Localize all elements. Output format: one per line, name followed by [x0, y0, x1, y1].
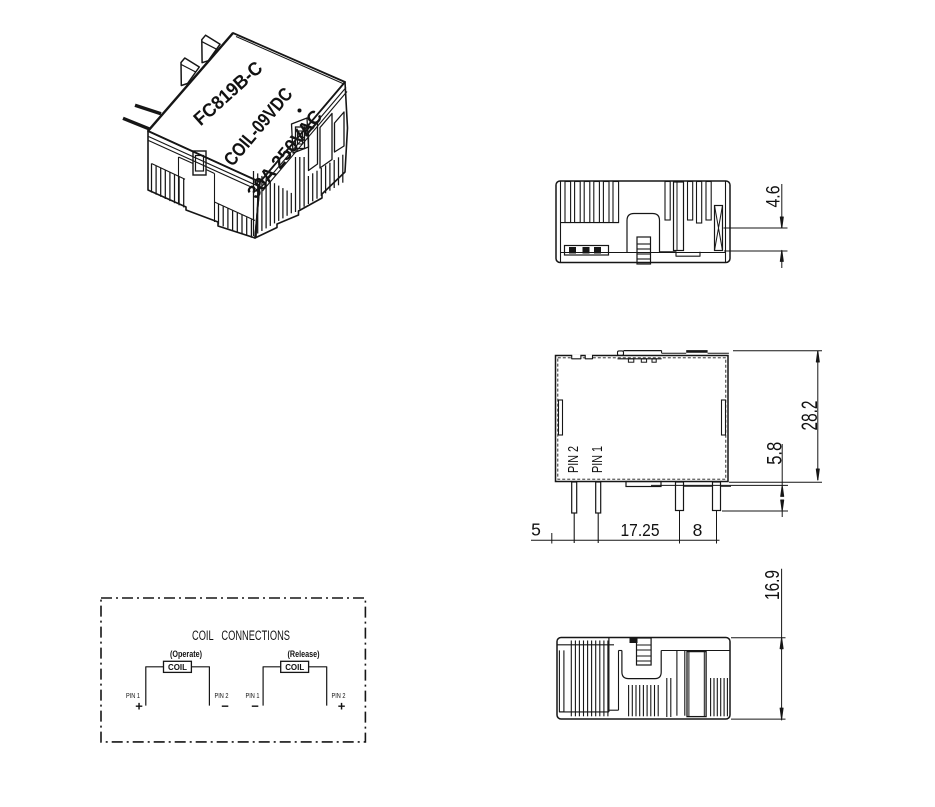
svg-text:5.8: 5.8	[764, 442, 787, 465]
svg-text:−: −	[221, 699, 229, 714]
svg-text:(Release): (Release)	[288, 649, 320, 660]
svg-text:COIL: COIL	[285, 663, 304, 672]
svg-text:28.2: 28.2	[797, 401, 822, 431]
svg-text:8: 8	[693, 520, 703, 540]
svg-text:COIL: COIL	[168, 663, 187, 672]
svg-text:PIN 1: PIN 1	[590, 446, 606, 473]
svg-text:16.9: 16.9	[762, 570, 784, 600]
svg-text:4.6: 4.6	[764, 186, 785, 208]
svg-text:5: 5	[531, 520, 541, 540]
svg-text:PIN 2: PIN 2	[566, 446, 582, 473]
svg-text:COIL CONNECTIONS: COIL CONNECTIONS	[192, 628, 290, 643]
svg-text:+: +	[135, 699, 143, 714]
svg-text:+: +	[338, 699, 346, 714]
svg-text:−: −	[251, 699, 259, 714]
svg-text:(Operate): (Operate)	[170, 649, 202, 660]
svg-text:17.25: 17.25	[621, 520, 660, 540]
